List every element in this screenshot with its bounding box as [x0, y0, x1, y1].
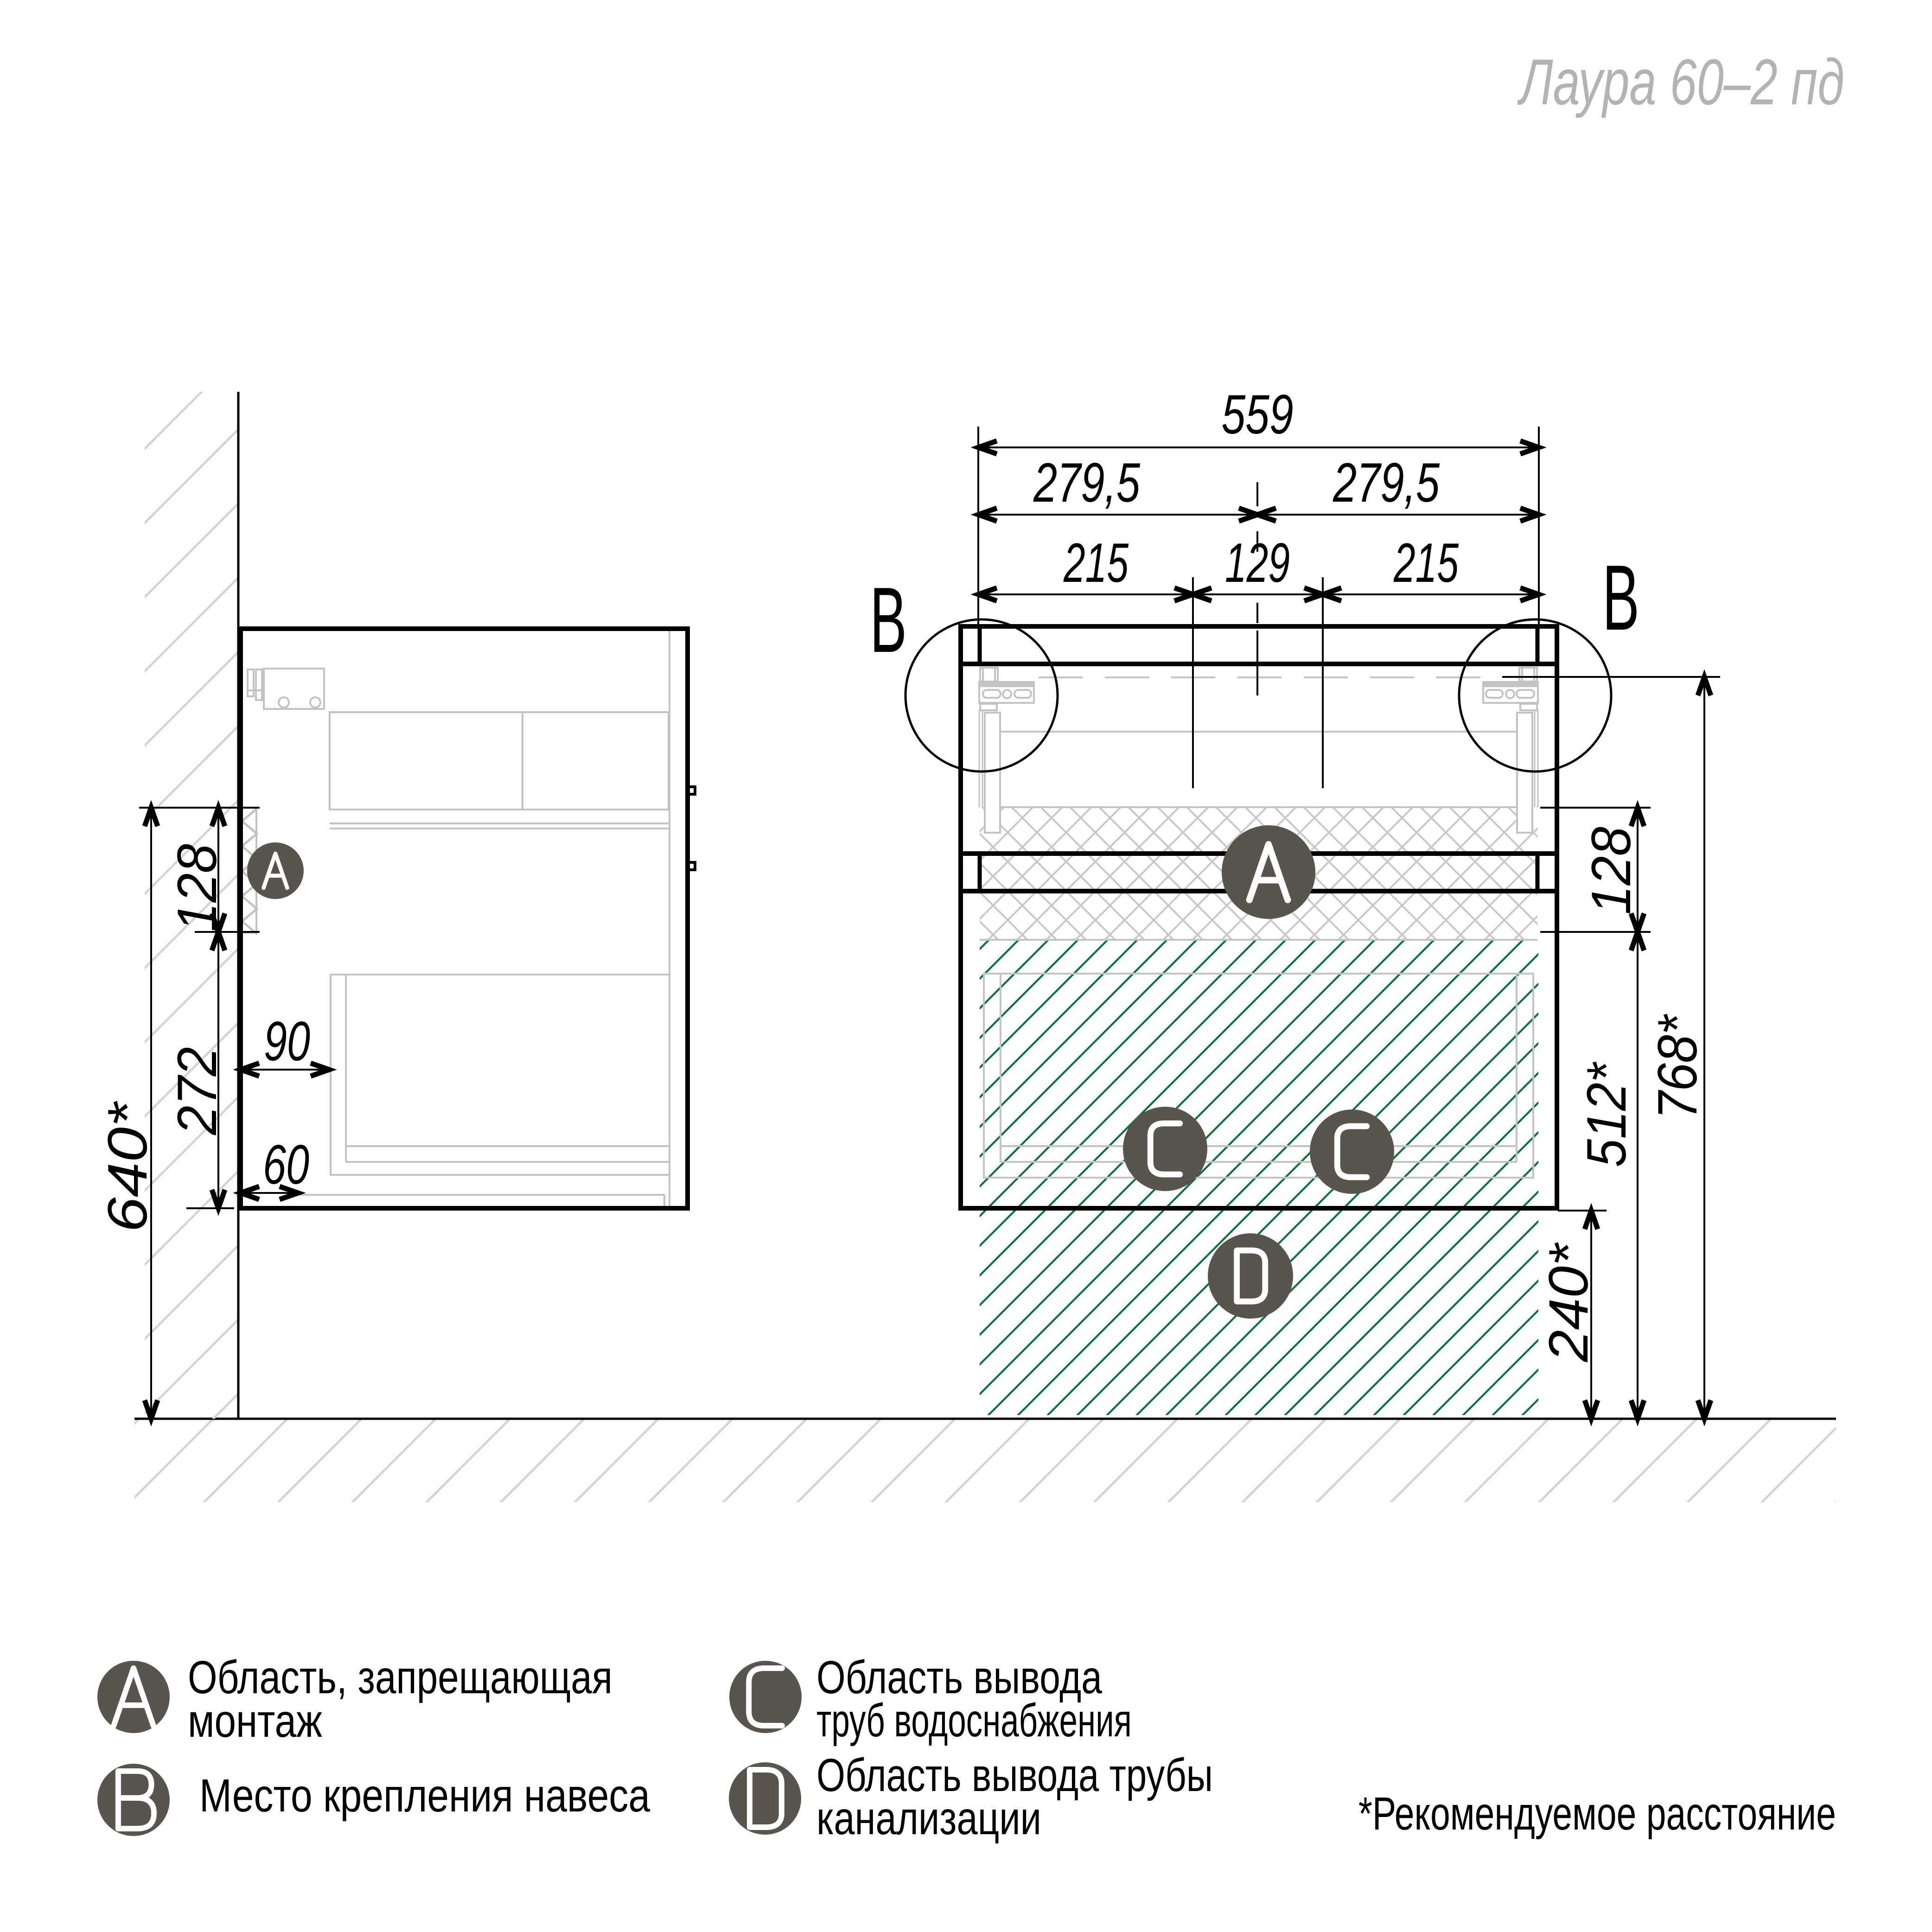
svg-text:128: 128 [166, 844, 228, 932]
svg-text:B: B [1602, 546, 1639, 650]
svg-text:215: 215 [1063, 532, 1129, 594]
svg-text:128: 128 [1580, 827, 1642, 915]
svg-text:60: 60 [263, 1134, 309, 1196]
svg-text:труб водоснабжения: труб водоснабжения [816, 1695, 1132, 1747]
svg-text:512*: 512* [1575, 1061, 1638, 1167]
svg-text:272: 272 [166, 1047, 228, 1135]
svg-text:129: 129 [1225, 532, 1290, 594]
svg-text:640*: 640* [96, 1101, 159, 1232]
svg-text:Место крепления навеса: Место крепления навеса [199, 1770, 650, 1822]
svg-text:90: 90 [264, 1010, 310, 1072]
svg-text:279,5: 279,5 [1033, 452, 1141, 514]
svg-text:279,5: 279,5 [1333, 452, 1440, 514]
svg-text:монтаж: монтаж [188, 1695, 322, 1747]
svg-text:*Рекомендуемое расстояние: *Рекомендуемое расстояние [1358, 1788, 1836, 1840]
svg-text:240*: 240* [1537, 1242, 1600, 1362]
svg-text:B: B [870, 568, 907, 672]
svg-text:768*: 768* [1646, 1014, 1709, 1119]
svg-text:215: 215 [1393, 532, 1459, 594]
svg-text:559: 559 [1222, 383, 1294, 446]
svg-text:канализации: канализации [816, 1792, 1041, 1844]
svg-text:Лаура 60–2 пд: Лаура 60–2 пд [1517, 45, 1844, 118]
